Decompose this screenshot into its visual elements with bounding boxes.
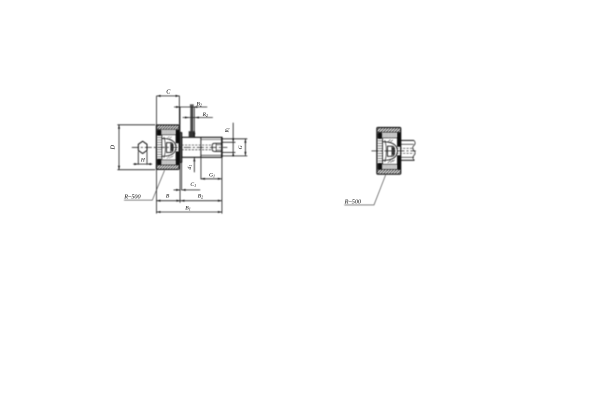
svg-text:B1: B1 xyxy=(185,206,190,212)
svg-text:B2: B2 xyxy=(198,194,203,200)
svg-text:B2: B2 xyxy=(196,102,201,108)
svg-text:d1: d1 xyxy=(187,165,193,170)
svg-text:B: B xyxy=(166,193,170,199)
svg-text:R~500: R~500 xyxy=(123,194,141,201)
svg-text:R2: R2 xyxy=(202,112,208,118)
svg-text:R~500: R~500 xyxy=(344,199,362,206)
svg-text:D: D xyxy=(110,144,117,150)
svg-text:G1: G1 xyxy=(209,173,215,179)
svg-text:C1: C1 xyxy=(190,182,196,188)
svg-text:G: G xyxy=(238,145,244,149)
svg-text:R1: R1 xyxy=(226,127,231,133)
